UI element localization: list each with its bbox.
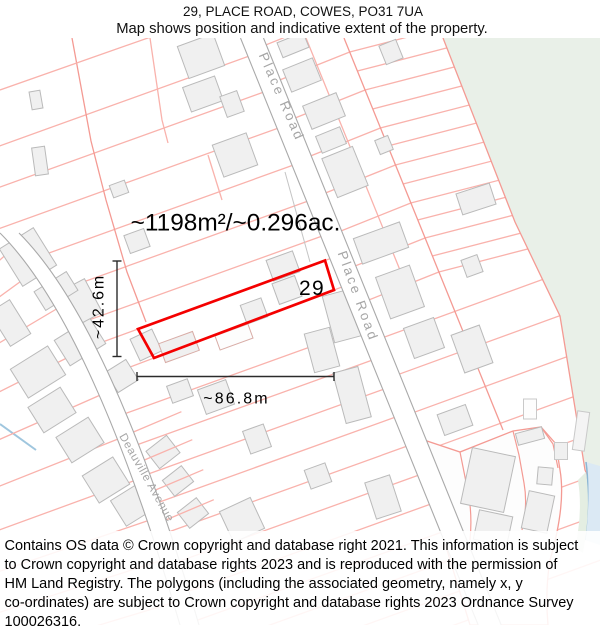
svg-text:29: 29 [299, 277, 325, 300]
svg-text:~86.8m: ~86.8m [203, 390, 269, 407]
svg-text:~42.6m: ~42.6m [91, 274, 108, 339]
svg-text:~1198m²/~0.296ac.: ~1198m²/~0.296ac. [131, 210, 341, 237]
